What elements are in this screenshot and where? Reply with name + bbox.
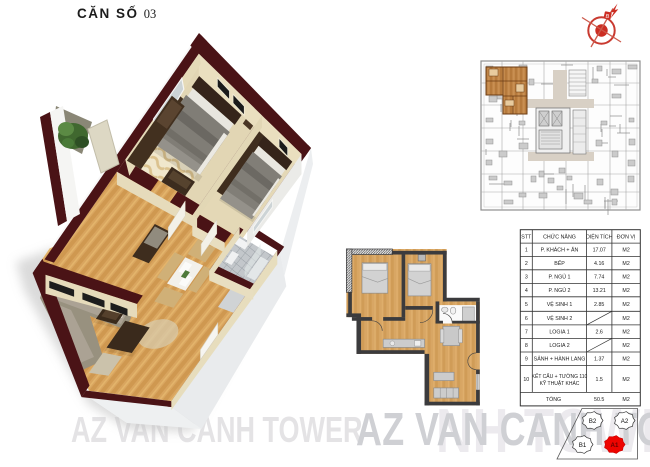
svg-text:CHỨC NĂNG: CHỨC NĂNG (543, 233, 576, 240)
svg-text:M2: M2 (622, 377, 629, 383)
svg-text:SẢNH + HÀNH LANG: SẢNH + HÀNH LANG (534, 356, 586, 363)
svg-text:50.5: 50.5 (594, 397, 604, 403)
svg-text:M2: M2 (622, 248, 629, 254)
svg-text:5: 5 (525, 302, 528, 308)
svg-text:P. NGỦ 1: P. NGỦ 1 (549, 274, 571, 281)
svg-text:TỔNG: TỔNG (546, 396, 561, 403)
svg-text:P. NGỦ 2: P. NGỦ 2 (549, 287, 571, 294)
svg-text:B1: B1 (579, 442, 587, 449)
svg-text:7: 7 (525, 330, 528, 336)
svg-text:M2: M2 (622, 302, 629, 308)
svg-text:BẾP: BẾP (554, 260, 565, 267)
svg-text:KẾT CẤU + TƯỜNG 110: KẾT CẤU + TƯỜNG 110 (532, 373, 588, 380)
svg-text:7.74: 7.74 (594, 275, 604, 281)
svg-text:1.37: 1.37 (594, 357, 604, 363)
svg-text:2.85: 2.85 (594, 302, 604, 308)
svg-text:4.16: 4.16 (594, 261, 604, 267)
svg-text:M2: M2 (622, 275, 629, 281)
svg-text:P. KHÁCH + ĂN: P. KHÁCH + ĂN (541, 247, 579, 254)
svg-text:ĐƠN VỊ: ĐƠN VỊ (617, 234, 636, 240)
svg-text:B2: B2 (589, 418, 597, 425)
svg-text:LOGIA 1: LOGIA 1 (549, 330, 569, 336)
svg-text:8: 8 (525, 343, 528, 349)
svg-text:VỆ SINH 2: VỆ SINH 2 (547, 314, 573, 322)
svg-text:A2: A2 (621, 418, 629, 425)
svg-text:LOGIA 2: LOGIA 2 (549, 343, 569, 349)
svg-text:6: 6 (525, 316, 528, 322)
svg-text:2: 2 (525, 261, 528, 267)
svg-text:STT: STT (521, 234, 532, 240)
svg-text:M2: M2 (622, 288, 629, 294)
svg-text:VỆ SINH 1: VỆ SINH 1 (547, 300, 573, 308)
svg-text:17.07: 17.07 (593, 248, 606, 254)
svg-text:KỸ THUẬT KHÁC: KỸ THUẬT KHÁC (540, 380, 580, 387)
svg-text:13.21: 13.21 (593, 288, 606, 294)
svg-text:10: 10 (523, 377, 529, 383)
svg-text:1: 1 (525, 248, 528, 254)
svg-text:3: 3 (525, 275, 528, 281)
svg-text:2.6: 2.6 (596, 330, 603, 336)
svg-text:M2: M2 (622, 261, 629, 267)
svg-text:M2: M2 (622, 343, 629, 349)
svg-text:M2: M2 (622, 330, 629, 336)
svg-text:A1: A1 (611, 442, 619, 449)
svg-text:4: 4 (525, 288, 528, 294)
svg-text:1.5: 1.5 (596, 377, 603, 383)
svg-text:M2: M2 (622, 397, 629, 403)
svg-text:DIỆN TÍCH: DIỆN TÍCH (586, 232, 613, 240)
svg-text:M2: M2 (622, 357, 629, 363)
svg-text:M2: M2 (622, 316, 629, 322)
svg-text:9: 9 (525, 357, 528, 363)
